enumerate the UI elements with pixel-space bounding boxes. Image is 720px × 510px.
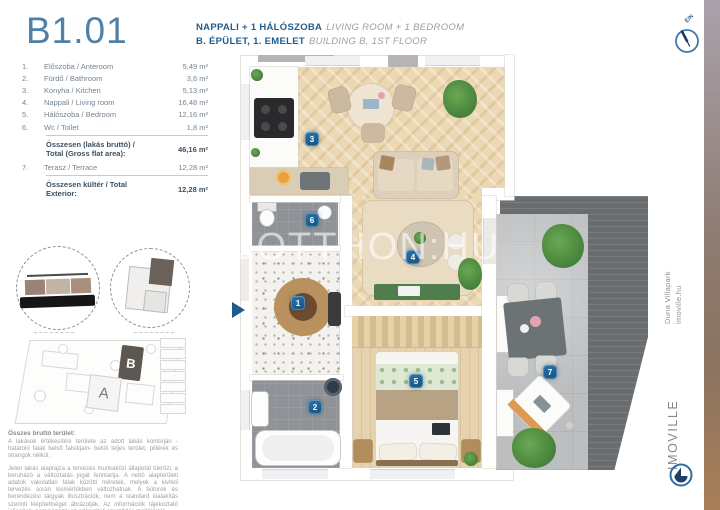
project-name: Duna Villapark	[663, 271, 672, 324]
bush-icon	[512, 428, 556, 468]
table-row-terrace: 7. Terasz / Terrace 12,28 m²	[22, 161, 208, 173]
plant-icon	[251, 69, 263, 81]
table-row: 4. Nappali / Living room 16,48 m²	[22, 97, 208, 109]
room-badge-anteroom: 1	[291, 296, 305, 310]
room-badge-kitchen: 3	[305, 132, 319, 146]
table-row: 2. Fürdő / Bathroom 3,6 m²	[22, 72, 208, 84]
site-building-outline	[125, 383, 155, 406]
row-area: 5,49 m²	[158, 62, 208, 71]
elevation-floor-band	[25, 278, 91, 295]
row-num: 7.	[22, 163, 44, 172]
total-flat-label: Összesen (lakás bruttó) / Total (Gross f…	[46, 140, 158, 158]
window	[241, 390, 250, 430]
window	[305, 56, 360, 66]
exterior-wall-top-right	[505, 55, 514, 196]
brand-logo-icon	[668, 462, 694, 488]
toilet	[260, 210, 274, 226]
legal-paragraph-1: A lakások értékesítési területe az adott…	[8, 439, 178, 461]
total-exterior-value: 12,28 m²	[158, 185, 208, 194]
parking-stall	[160, 382, 186, 392]
parking-stall	[160, 349, 186, 359]
terrace-planter	[497, 390, 513, 436]
room-badge-bathroom: 2	[308, 400, 322, 414]
building-b-marker: B	[118, 345, 144, 381]
table-row: 6. Wc / Toilet 1,8 m²	[22, 121, 208, 133]
building-a-marker: A	[86, 374, 122, 412]
row-num: 1.	[22, 62, 44, 71]
legal-disclaimer: Összes bruttó terület: A lakások értékes…	[8, 430, 178, 510]
row-area: 5,13 m²	[158, 86, 208, 95]
title-hu: NAPPALI + 1 HÁLÓSZOBA	[196, 22, 322, 33]
bathtub	[256, 431, 340, 465]
legal-heading: Összes bruttó terület:	[8, 430, 178, 437]
table-row: 3. Konyha / Kitchen 5,13 m²	[22, 84, 208, 96]
total-flat-value: 46,16 m²	[158, 145, 208, 154]
parking-stall	[160, 338, 186, 348]
row-name: Nappali / Living room	[44, 98, 158, 107]
row-name: Terasz / Terrace	[44, 163, 158, 172]
parking-stall	[160, 371, 186, 381]
row-name: Konyha / Kitchen	[44, 86, 158, 95]
table-decor	[520, 324, 529, 333]
window	[425, 56, 480, 66]
row-area: 12,16 m²	[158, 110, 208, 119]
total-flat-row: Összesen (lakás bruttó) / Total (Gross f…	[46, 140, 208, 158]
location-en: BUILDING B, 1ST FLOOR	[309, 36, 427, 47]
header-line-2: B. ÉPÜLET, 1. EMELETBUILDING B, 1ST FLOO…	[196, 35, 464, 49]
row-area: 16,48 m²	[158, 98, 208, 107]
pillow	[420, 443, 457, 461]
title-en: LIVING ROOM + 1 BEDROOM	[326, 22, 464, 33]
room-badge-bedroom: 5	[409, 374, 423, 388]
tv	[398, 286, 420, 296]
sofa-pillow	[435, 155, 451, 171]
terrace-deck-top	[500, 196, 648, 214]
tree-icon	[34, 390, 46, 402]
outdoor-chair	[508, 284, 528, 302]
compass-icon	[672, 26, 702, 56]
sofa-pillow	[379, 155, 395, 171]
kitchen-sink	[300, 172, 330, 190]
kitchen-peninsula	[250, 168, 348, 194]
pillow	[380, 443, 417, 461]
flower-decor	[530, 316, 541, 327]
table-row: 1. Előszoba / Anteroom 5,49 m²	[22, 60, 208, 72]
plant-icon	[251, 148, 260, 157]
floorplan-sheet: B1.01 NAPPALI + 1 HÁLÓSZOBALIVING ROOM +…	[0, 0, 720, 510]
unit-id: B1.01	[26, 10, 128, 52]
fruit-bowl	[276, 170, 291, 185]
watermark: UJOTTHON:HU	[206, 226, 500, 269]
unit-highlight	[149, 258, 175, 286]
headboard	[376, 460, 458, 466]
row-num: 6.	[22, 123, 44, 132]
brand-logotype: IMOVILLE	[666, 392, 680, 470]
laptop	[432, 423, 450, 435]
terrace-deck-right	[588, 214, 648, 470]
total-exterior-row: Összesen kültér / Total Exterior: 12,28 …	[46, 180, 208, 198]
row-area: 3,6 m²	[158, 74, 208, 83]
parking-stall	[160, 360, 186, 370]
shoe-bench	[328, 292, 341, 326]
project-name-vertical: Duna Villapark imoville.hu	[662, 224, 684, 324]
row-num: 2.	[22, 74, 44, 83]
row-name: Wc / Toilet	[44, 123, 158, 132]
elevation-highlighted-floor	[20, 295, 96, 309]
row-area: 12,28 m²	[158, 163, 208, 172]
row-name: Előszoba / Anteroom	[44, 62, 158, 71]
dining-chair	[362, 124, 384, 142]
outdoor-chair	[508, 358, 528, 376]
row-num: 5.	[22, 110, 44, 119]
room-area-table: 1. Előszoba / Anteroom 5,49 m² 2. Fürdő …	[22, 60, 208, 201]
bush-icon	[542, 224, 584, 268]
row-area: 1,8 m²	[158, 123, 208, 132]
sheet-header: NAPPALI + 1 HÁLÓSZOBALIVING ROOM + 1 BED…	[196, 21, 464, 48]
washing-machine	[324, 378, 342, 396]
bathroom-sink	[252, 392, 268, 426]
bed	[376, 352, 458, 466]
tree-icon	[58, 344, 68, 354]
tree-icon	[146, 344, 156, 354]
window	[241, 84, 250, 140]
road-dash	[34, 332, 74, 333]
row-name: Hálószoba / Bedroom	[44, 110, 158, 119]
row-num: 3.	[22, 86, 44, 95]
page-edge-strip	[704, 0, 720, 510]
legal-paragraph-2: Jelen lakás alaprajza a tervezés munkakö…	[8, 466, 178, 510]
row-name: Fürdő / Bathroom	[44, 74, 158, 83]
road-dash	[134, 332, 174, 333]
plant-icon	[443, 80, 477, 118]
parking-stall	[160, 404, 186, 414]
plant-icon	[464, 452, 478, 466]
flower-decor	[378, 92, 385, 99]
window	[262, 469, 328, 479]
bed-throw	[376, 390, 458, 420]
wardrobe	[352, 316, 482, 348]
parking-stall	[160, 393, 186, 403]
outdoor-table	[503, 297, 567, 361]
table-divider	[46, 135, 208, 136]
side-table	[566, 422, 573, 429]
compass-north-label: É/N	[684, 14, 695, 25]
row-num: 4.	[22, 98, 44, 107]
window	[370, 469, 455, 479]
elevation-roof-line	[27, 273, 88, 277]
room-badge-wc: 6	[305, 213, 319, 227]
floorplate-wing	[143, 290, 167, 313]
sofa-pillow	[421, 157, 434, 170]
project-website: imoville.hu	[674, 285, 683, 324]
sofa	[374, 152, 458, 198]
interior-wall	[345, 306, 482, 316]
entrance-arrow	[232, 302, 245, 318]
room-badge-terrace: 7	[543, 365, 557, 379]
total-exterior-label: Összesen kültér / Total Exterior:	[46, 180, 158, 198]
interior-wall	[250, 196, 340, 202]
wc-sink	[318, 206, 331, 219]
table-divider	[46, 175, 208, 176]
cooktop	[254, 98, 294, 138]
header-line-1: NAPPALI + 1 HÁLÓSZOBALIVING ROOM + 1 BED…	[196, 21, 464, 35]
floorplate-locator	[110, 248, 190, 328]
nightstand	[354, 440, 372, 462]
location-hu: B. ÉPÜLET, 1. EMELET	[196, 36, 305, 47]
table-decor	[363, 99, 379, 109]
site-plan: B A	[14, 330, 192, 428]
building-elevation-locator	[16, 246, 100, 330]
table-row: 5. Hálószoba / Bedroom 12,16 m²	[22, 109, 208, 121]
